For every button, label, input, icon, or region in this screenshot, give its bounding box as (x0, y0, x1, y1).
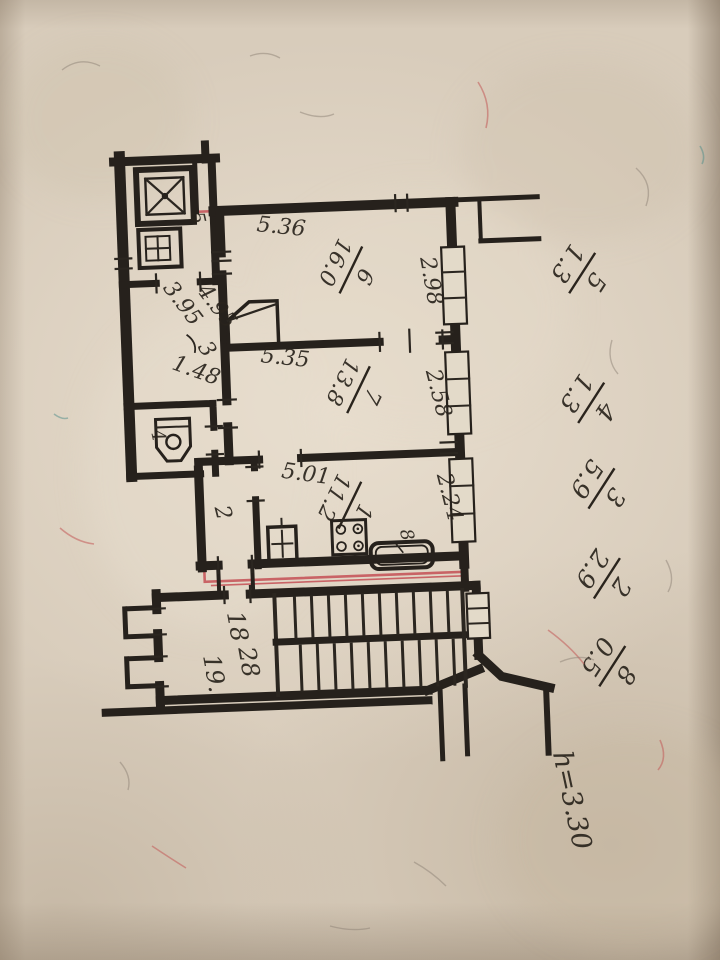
floorplan-drawing: 5.36 2.98 5.35 2.58 5.01 2.24 4.95 3.95 … (0, 0, 720, 960)
wall (546, 688, 548, 753)
room-label-5: 5 (186, 209, 210, 225)
stair-number-28: 28 (232, 644, 265, 680)
explication-number: 3 (599, 483, 632, 512)
explication-entry-3: 3 5.9 (562, 451, 641, 525)
stray-mark (152, 846, 186, 868)
stray-mark (414, 862, 446, 886)
window (466, 593, 490, 639)
explication-number: 8 (610, 661, 643, 690)
floorplan-photo: 5.36 2.98 5.35 2.58 5.01 2.24 4.95 3.95 … (0, 0, 720, 960)
wall (479, 653, 550, 691)
stray-mark (54, 414, 68, 419)
stray-mark (700, 146, 704, 164)
wall (205, 144, 206, 159)
explication-entry-4: 4 1.3 (551, 365, 630, 439)
stray-mark (666, 560, 672, 592)
stove-icon (332, 520, 367, 555)
sink-icon (138, 228, 181, 268)
stair-number-18: 18 (221, 609, 254, 644)
wall (453, 197, 537, 200)
stray-mark (60, 528, 94, 544)
wall (481, 239, 539, 241)
stairs (274, 588, 466, 695)
stair-number-19: 19. (197, 652, 231, 695)
dimension-label-top6: 5.36 (255, 212, 306, 242)
stray-mark (250, 53, 280, 58)
stray-mark (610, 340, 618, 374)
wall (479, 203, 480, 241)
stray-mark (120, 762, 129, 790)
dimension-label-top7: 5.35 (260, 343, 311, 373)
wall (198, 470, 202, 568)
wall (114, 158, 216, 162)
wall (440, 686, 468, 759)
explication-entry-2: 2 2.9 (567, 541, 646, 615)
stray-mark (548, 630, 584, 664)
stray-mark (330, 926, 370, 930)
explication-number: 5 (580, 267, 613, 296)
explication-entry-8: 8 0.5 (572, 629, 651, 703)
wall (106, 700, 429, 712)
stray-mark (300, 112, 334, 117)
